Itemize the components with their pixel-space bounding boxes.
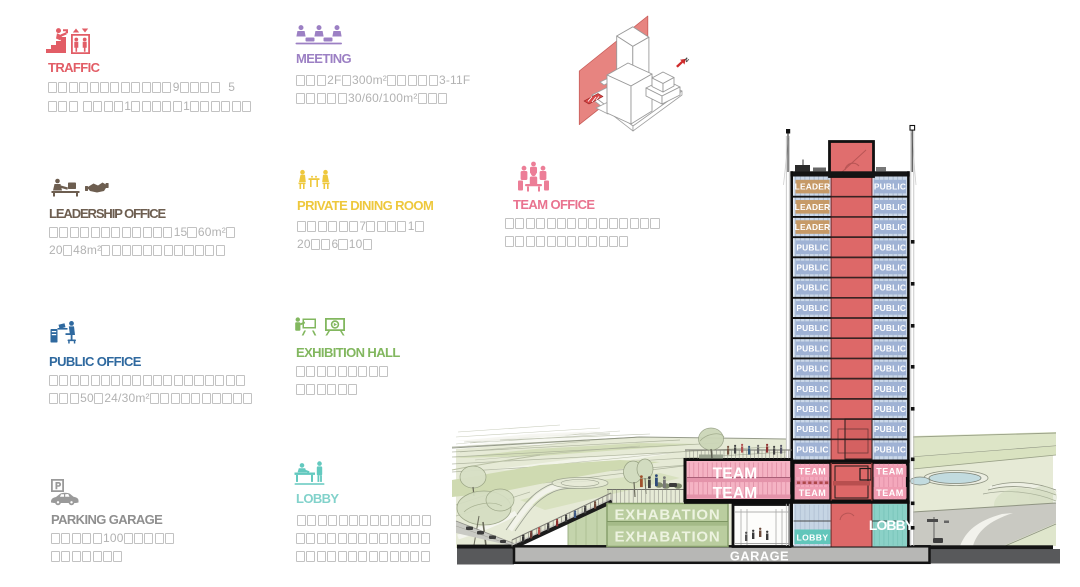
svg-text:TEAM: TEAM [876,488,904,498]
svg-text:PUBLIC: PUBLIC [874,283,906,293]
svg-text:LEADER: LEADER [795,182,831,192]
svg-text:LOBBY: LOBBY [869,518,914,533]
svg-text:LEADER: LEADER [795,202,831,212]
svg-text:PUBLIC: PUBLIC [796,343,828,353]
svg-text:TEAM: TEAM [876,467,904,477]
svg-text:PUBLIC: PUBLIC [874,262,906,272]
svg-text:PUBLIC: PUBLIC [874,182,906,192]
svg-text:PUBLIC: PUBLIC [874,424,906,434]
svg-text:PUBLIC: PUBLIC [874,384,906,394]
svg-text:TEAM: TEAM [799,488,827,498]
svg-text:PUBLIC: PUBLIC [796,283,828,293]
svg-text:GARAGE: GARAGE [730,548,789,563]
svg-text:PUBLIC: PUBLIC [796,242,828,252]
svg-text:PUBLIC: PUBLIC [796,303,828,313]
svg-text:PUBLIC: PUBLIC [796,424,828,434]
svg-text:PUBLIC: PUBLIC [796,364,828,374]
svg-text:PUBLIC: PUBLIC [874,323,906,333]
svg-text:PUBLIC: PUBLIC [874,303,906,313]
svg-text:PUBLIC: PUBLIC [796,262,828,272]
svg-text:PUBLIC: PUBLIC [796,444,828,454]
svg-text:PUBLIC: PUBLIC [874,444,906,454]
svg-text:PUBLIC: PUBLIC [796,404,828,414]
svg-text:TEAM: TEAM [713,485,758,502]
svg-text:PUBLIC: PUBLIC [874,343,906,353]
svg-text:PUBLIC: PUBLIC [796,384,828,394]
svg-text:PUBLIC: PUBLIC [874,202,906,212]
svg-text:LOBBY: LOBBY [796,533,828,543]
svg-text:LEADER: LEADER [795,222,831,232]
svg-text:PUBLIC: PUBLIC [796,323,828,333]
svg-text:TEAM: TEAM [799,467,827,477]
svg-text:PUBLIC: PUBLIC [874,222,906,232]
svg-text:PUBLIC: PUBLIC [874,364,906,374]
svg-text:EXHABATION: EXHABATION [614,529,720,546]
svg-text:TEAM: TEAM [713,466,758,483]
svg-text:PUBLIC: PUBLIC [874,404,906,414]
svg-text:PUBLIC: PUBLIC [874,242,906,252]
svg-text:EXHABATION: EXHABATION [614,507,720,524]
